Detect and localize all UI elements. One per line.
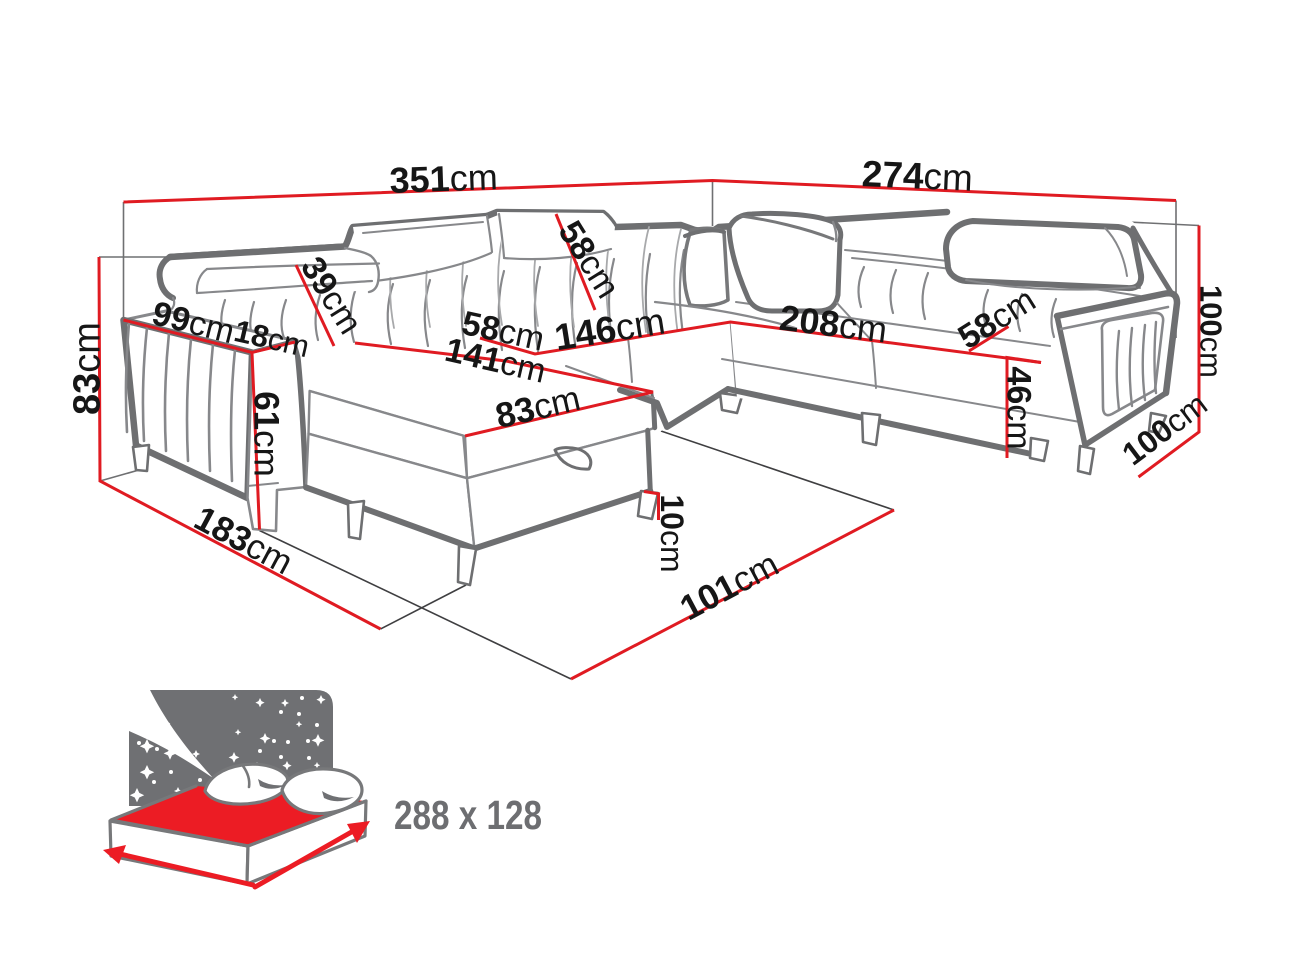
svg-text:288 x 128: 288 x 128 <box>394 792 542 838</box>
svg-text:83cm: 83cm <box>66 322 108 415</box>
svg-text:10cm: 10cm <box>654 494 690 572</box>
svg-text:46cm: 46cm <box>999 366 1037 449</box>
svg-text:351cm: 351cm <box>389 156 498 201</box>
svg-text:61cm: 61cm <box>247 391 286 477</box>
svg-text:100cm: 100cm <box>1194 285 1229 378</box>
svg-text:274cm: 274cm <box>861 153 974 199</box>
